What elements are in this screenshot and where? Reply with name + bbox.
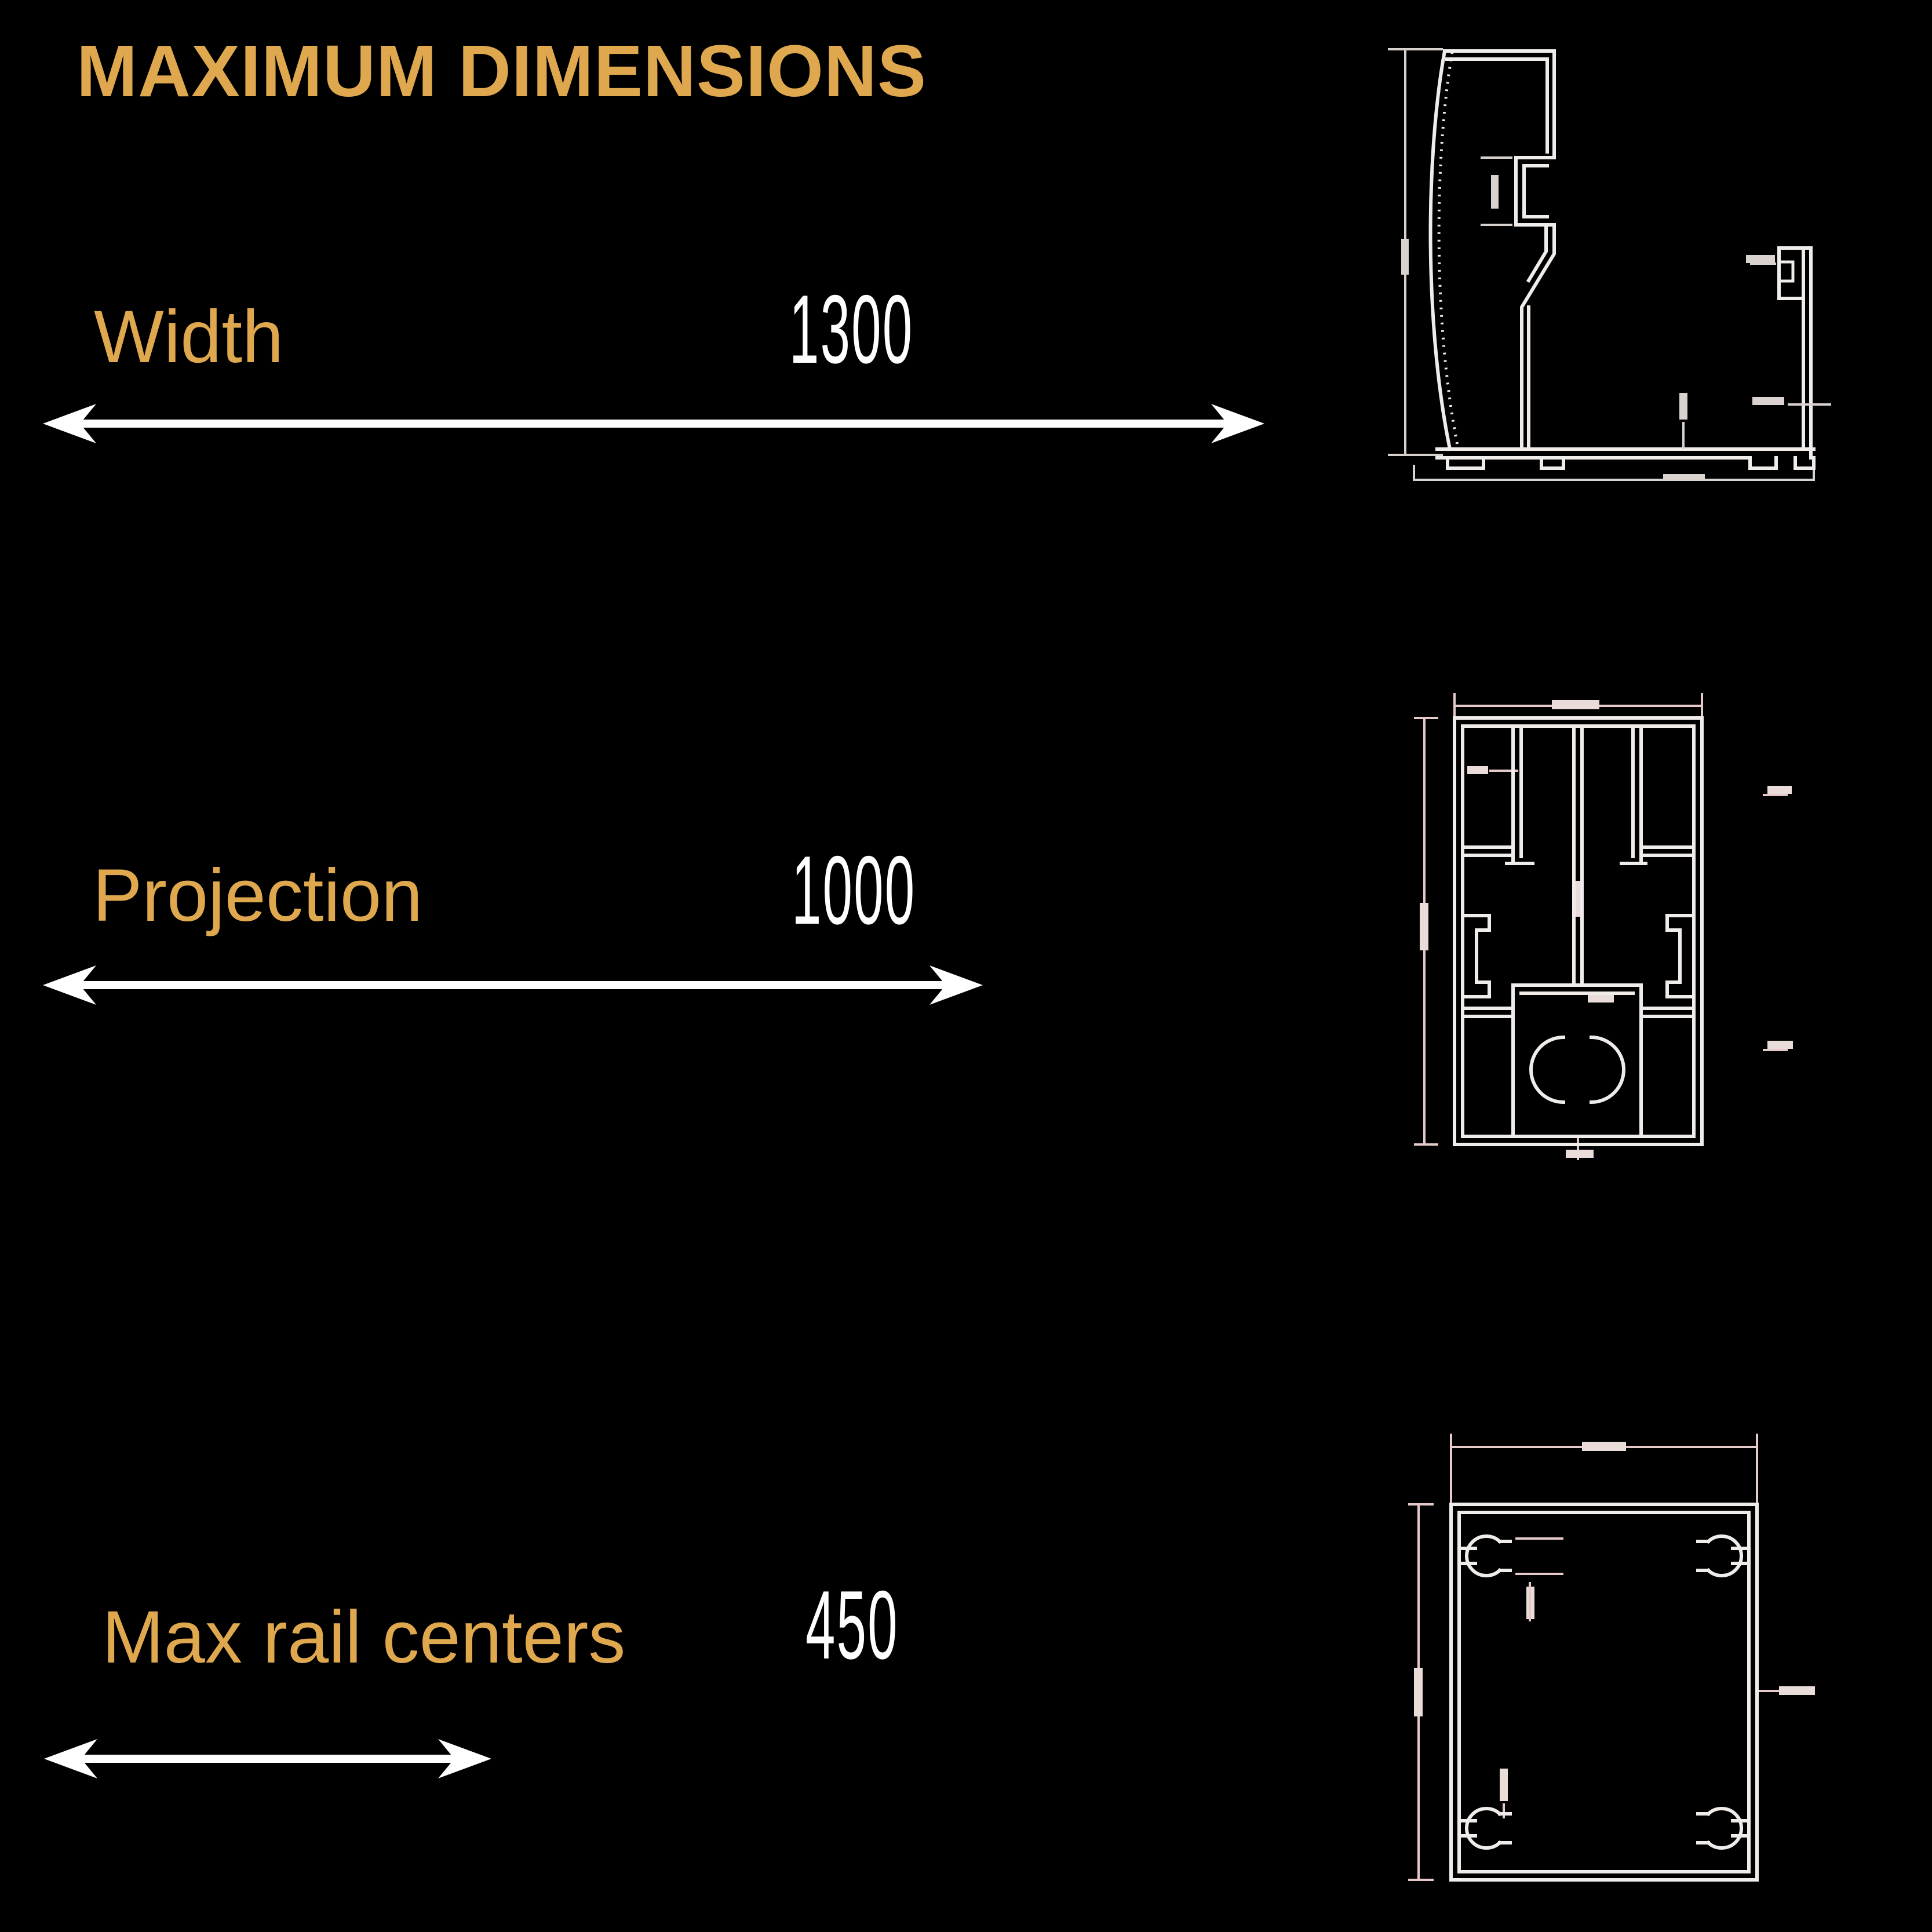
width-label: Width: [94, 294, 283, 380]
maximum-dimensions-infographic: MAXIMUM DIMENSIONS Width 1300 Projection…: [0, 0, 1932, 1932]
rail-centers-double-arrow-icon: [43, 1738, 493, 1780]
profile-cross-section-drawing-top: [1350, 23, 1872, 481]
width-double-arrow-icon: [42, 403, 1266, 444]
width-value: 1300: [789, 290, 913, 370]
projection-value: 1000: [792, 851, 916, 931]
profile-cross-section-drawing-bottom: [1408, 1391, 1866, 1912]
profile-cross-section-drawing-middle: [1414, 672, 1796, 1171]
page-title: MAXIMUM DIMENSIONS: [76, 29, 927, 113]
max-rail-centers-value: 450: [805, 1585, 899, 1665]
max-rail-centers-label: Max rail centers: [102, 1595, 625, 1680]
projection-label: Projection: [93, 853, 422, 938]
projection-double-arrow-icon: [42, 964, 984, 1006]
